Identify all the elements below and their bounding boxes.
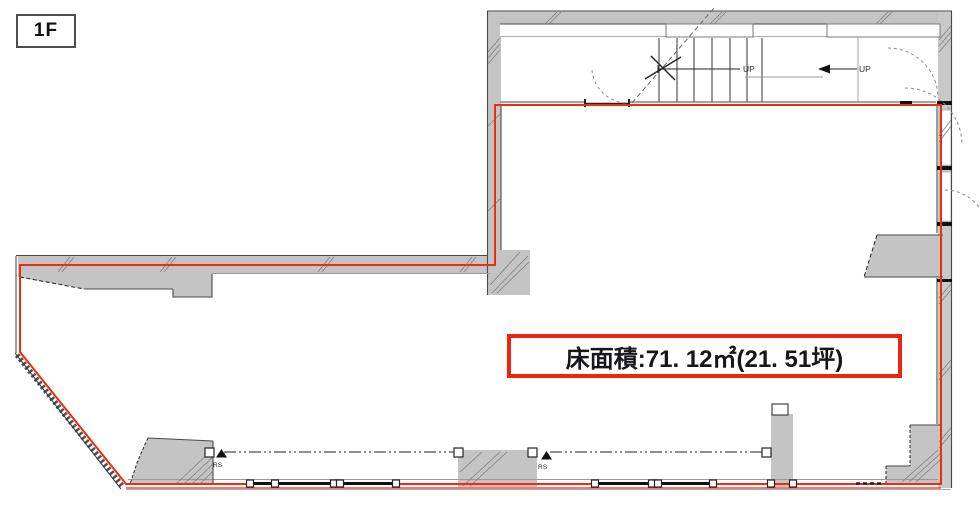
shutter-label-left: RS [213,462,223,469]
doors [585,48,980,232]
shutter-label-center: RS [538,464,548,471]
wall-hatching [58,12,951,486]
wall-lines [15,11,952,490]
floor-badge: 1F [16,14,76,48]
floor-badge-label: 1F [34,20,58,42]
area-label-box: 床面積:71. 12㎡(21. 51坪) [507,334,902,378]
shutter-pointer-left [216,449,227,458]
area-label-text: 床面積:71. 12㎡(21. 51坪) [566,339,843,374]
up-arrowhead [818,65,830,74]
floor-plan-page: UP UP [0,0,980,513]
walls [18,11,952,488]
tenancy-boundary [20,105,941,488]
up-label-stairs: UP [743,64,755,74]
floor-plan-drawing: UP UP [0,0,980,513]
up-label-right: UP [859,64,871,74]
